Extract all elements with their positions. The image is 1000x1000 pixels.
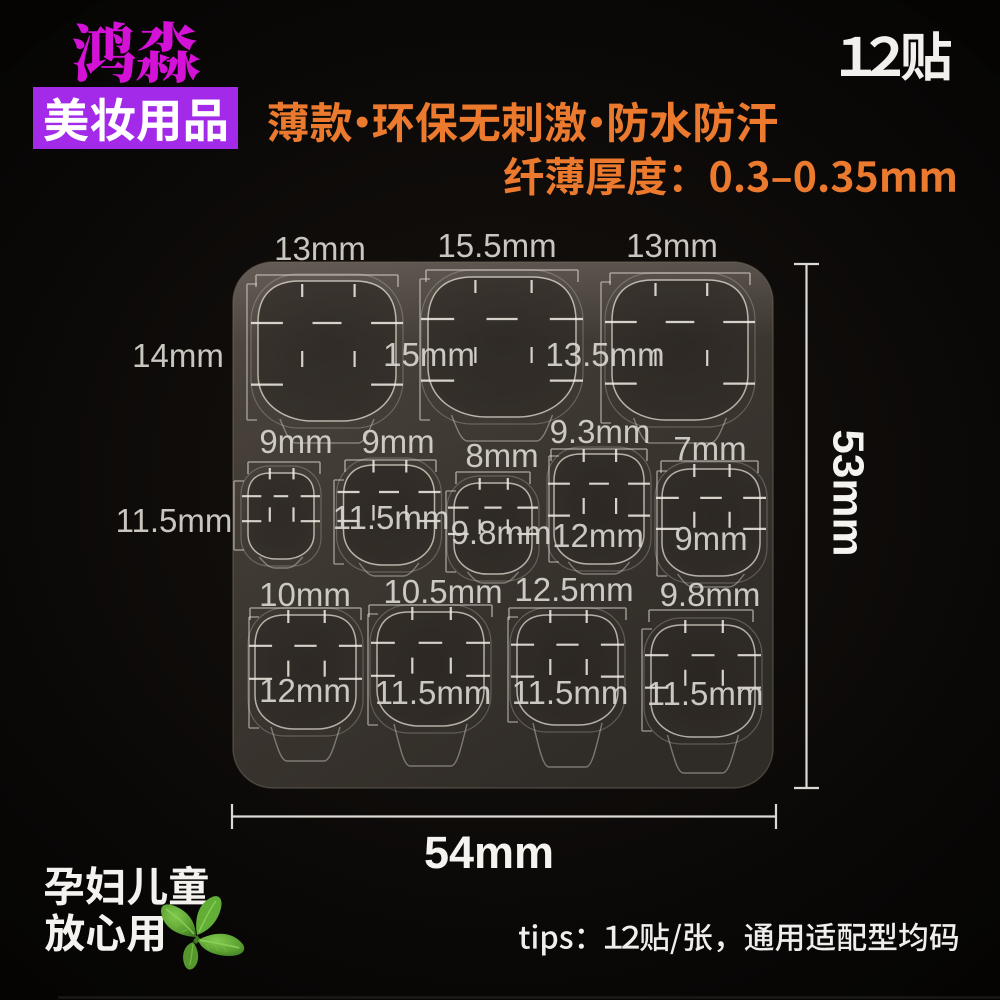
svg-text:15.5mm: 15.5mm [437,227,556,264]
svg-text:13mm: 13mm [626,227,718,264]
svg-text:13.5mm: 13.5mm [545,336,664,373]
svg-text:11.5mm: 11.5mm [512,674,629,711]
svg-text:11.5mm: 11.5mm [375,674,492,711]
svg-text:11.5mm: 11.5mm [333,499,450,536]
svg-text:7mm: 7mm [673,430,746,467]
svg-text:10mm: 10mm [259,576,351,613]
svg-text:9mm: 9mm [674,520,747,557]
svg-text:8mm: 8mm [465,437,538,474]
svg-text:9mm: 9mm [361,423,434,460]
svg-text:11.5mm: 11.5mm [647,675,764,712]
svg-text:12mm: 12mm [552,517,644,554]
svg-text:12.5mm: 12.5mm [514,571,633,608]
svg-text:9.3mm: 9.3mm [550,413,651,450]
svg-text:54mm: 54mm [424,827,554,878]
svg-text:53mm: 53mm [824,429,873,556]
svg-text:9mm: 9mm [259,423,332,460]
svg-text:10.5mm: 10.5mm [383,573,502,610]
svg-text:13mm: 13mm [274,230,366,267]
svg-text:9.8mm: 9.8mm [451,514,552,551]
svg-text:15mm: 15mm [383,336,475,373]
svg-text:9.8mm: 9.8mm [660,576,761,613]
svg-text:12mm: 12mm [259,672,351,709]
svg-text:14mm: 14mm [132,337,224,374]
svg-text:11.5mm: 11.5mm [116,502,233,539]
